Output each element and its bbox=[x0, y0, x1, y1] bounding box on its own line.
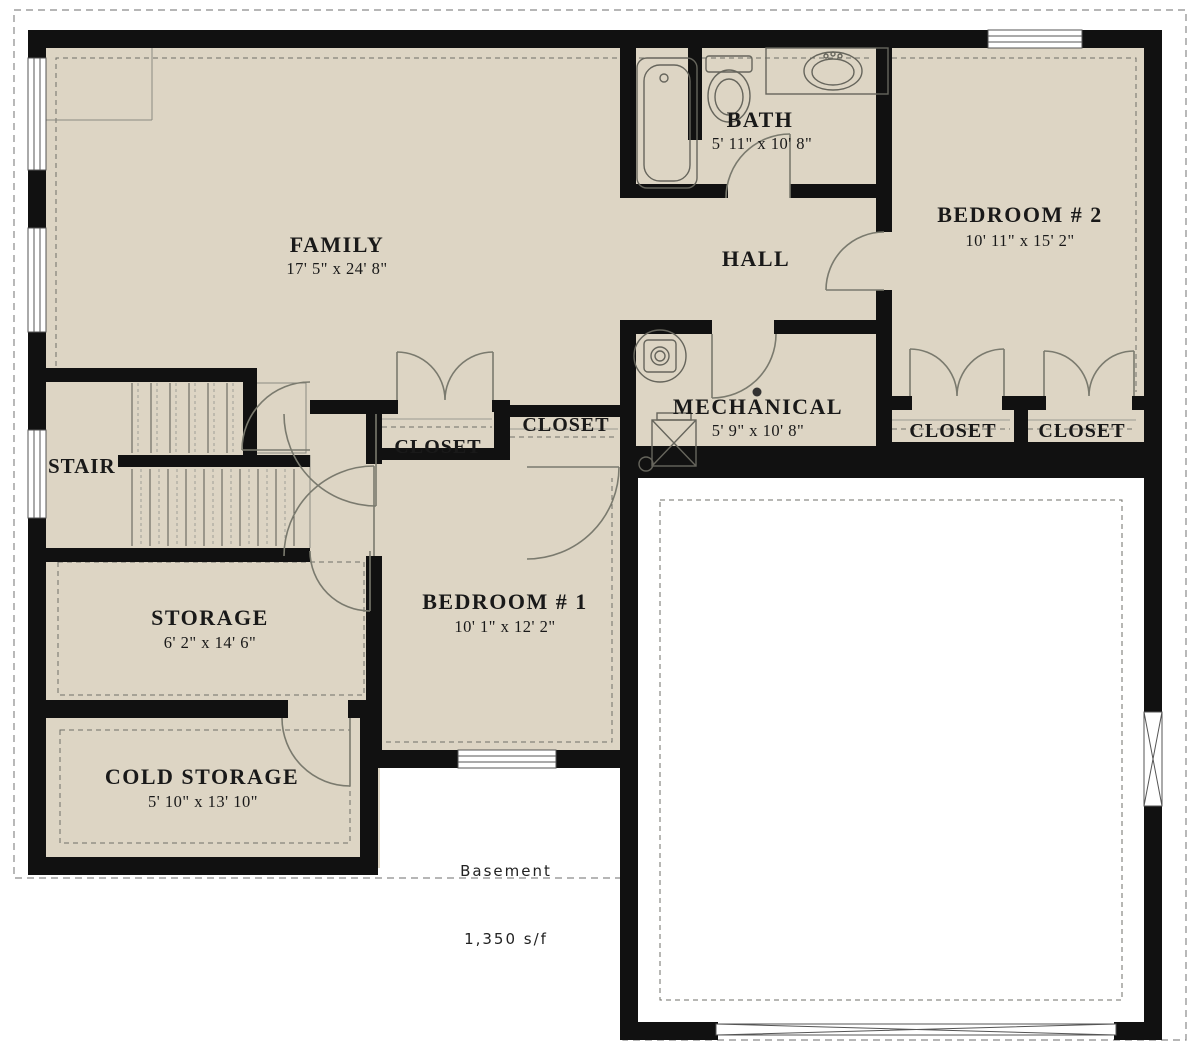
garage-door-icon bbox=[716, 1024, 1116, 1035]
room-label-bath: BATH bbox=[727, 107, 794, 132]
wall-segment bbox=[46, 368, 257, 382]
closet-label-3: CLOSET bbox=[909, 420, 996, 442]
room-label-stair: STAIR bbox=[48, 454, 116, 478]
wall-segment bbox=[790, 184, 886, 198]
wall-segment bbox=[366, 556, 382, 768]
wall-segment bbox=[28, 548, 310, 562]
wall-segment bbox=[1144, 48, 1162, 460]
wall-segment bbox=[774, 320, 876, 334]
room-label-bedroom2: BEDROOM # 2 bbox=[937, 202, 1103, 227]
floor-plan-drawing: FAMILY 17' 5" x 24' 8" BATH 5' 11" x 10'… bbox=[0, 0, 1200, 1046]
room-dims-bath: 5' 11" x 10' 8" bbox=[712, 134, 813, 153]
room-label-bedroom1: BEDROOM # 1 bbox=[422, 589, 588, 614]
wall-segment bbox=[28, 700, 288, 718]
wall-segment bbox=[1014, 410, 1028, 442]
wall-segment bbox=[620, 478, 638, 1040]
wall-segment bbox=[620, 48, 636, 198]
room-label-mechanical: MECHANICAL bbox=[673, 394, 843, 419]
wall-segment bbox=[620, 446, 892, 460]
room-dims-bedroom1: 10' 1" x 12' 2" bbox=[454, 617, 555, 636]
wall-segment bbox=[118, 455, 310, 467]
room-label-family: FAMILY bbox=[290, 232, 385, 257]
wall-segment bbox=[28, 518, 46, 875]
wall-segment bbox=[1114, 1022, 1162, 1040]
room-label-storage: STORAGE bbox=[151, 605, 269, 630]
closet-label-2: CLOSET bbox=[522, 414, 609, 436]
wall-segment bbox=[366, 400, 398, 412]
wall-segment bbox=[620, 320, 636, 460]
wall-segment bbox=[620, 184, 728, 198]
plan-footer: Basement 1,350 s/f bbox=[460, 862, 552, 948]
basement-floor-plan: FAMILY 17' 5" x 24' 8" BATH 5' 11" x 10'… bbox=[0, 0, 1200, 1046]
room-dims-storage: 6' 2" x 14' 6" bbox=[164, 633, 256, 652]
floor-name-text: Basement bbox=[460, 862, 552, 880]
room-dims-bedroom2: 10' 11" x 15' 2" bbox=[965, 231, 1074, 250]
window-icon bbox=[988, 30, 1082, 48]
wall-segment bbox=[28, 857, 378, 875]
room-dims-cold-storage: 5' 10" x 13' 10" bbox=[148, 792, 258, 811]
wall-segment bbox=[876, 48, 892, 232]
room-label-cold-storage: COLD STORAGE bbox=[105, 764, 299, 789]
wall-segment bbox=[620, 1022, 718, 1040]
window-icon bbox=[28, 58, 46, 170]
wall-segment bbox=[243, 368, 257, 458]
garage-vent-icon bbox=[1144, 712, 1162, 806]
closet-label-4: CLOSET bbox=[1038, 420, 1125, 442]
window-icon bbox=[28, 228, 46, 332]
wall-segment bbox=[366, 750, 458, 768]
floor-area-text: 1,350 s/f bbox=[464, 930, 548, 948]
wall-segment bbox=[28, 30, 988, 48]
wall-segment bbox=[636, 320, 712, 334]
wall-segment bbox=[1132, 396, 1144, 410]
wall-segment bbox=[1002, 396, 1046, 410]
room-dims-family: 17' 5" x 24' 8" bbox=[286, 259, 387, 278]
room-label-hall: HALL bbox=[722, 246, 790, 271]
wall-segment bbox=[28, 170, 46, 228]
wall-segment bbox=[876, 290, 892, 460]
wall-segment bbox=[28, 48, 46, 58]
wall-segment bbox=[1082, 30, 1162, 48]
window-icon bbox=[458, 750, 556, 768]
wall-segment bbox=[28, 332, 46, 430]
wall-segment bbox=[884, 442, 1162, 460]
wall-segment bbox=[884, 396, 912, 410]
closet-label-1: CLOSET bbox=[394, 436, 481, 458]
wall-segment bbox=[620, 460, 1162, 478]
room-dims-mechanical: 5' 9" x 10' 8" bbox=[712, 421, 804, 440]
wall-segment bbox=[492, 400, 510, 412]
window-icon bbox=[28, 430, 46, 518]
